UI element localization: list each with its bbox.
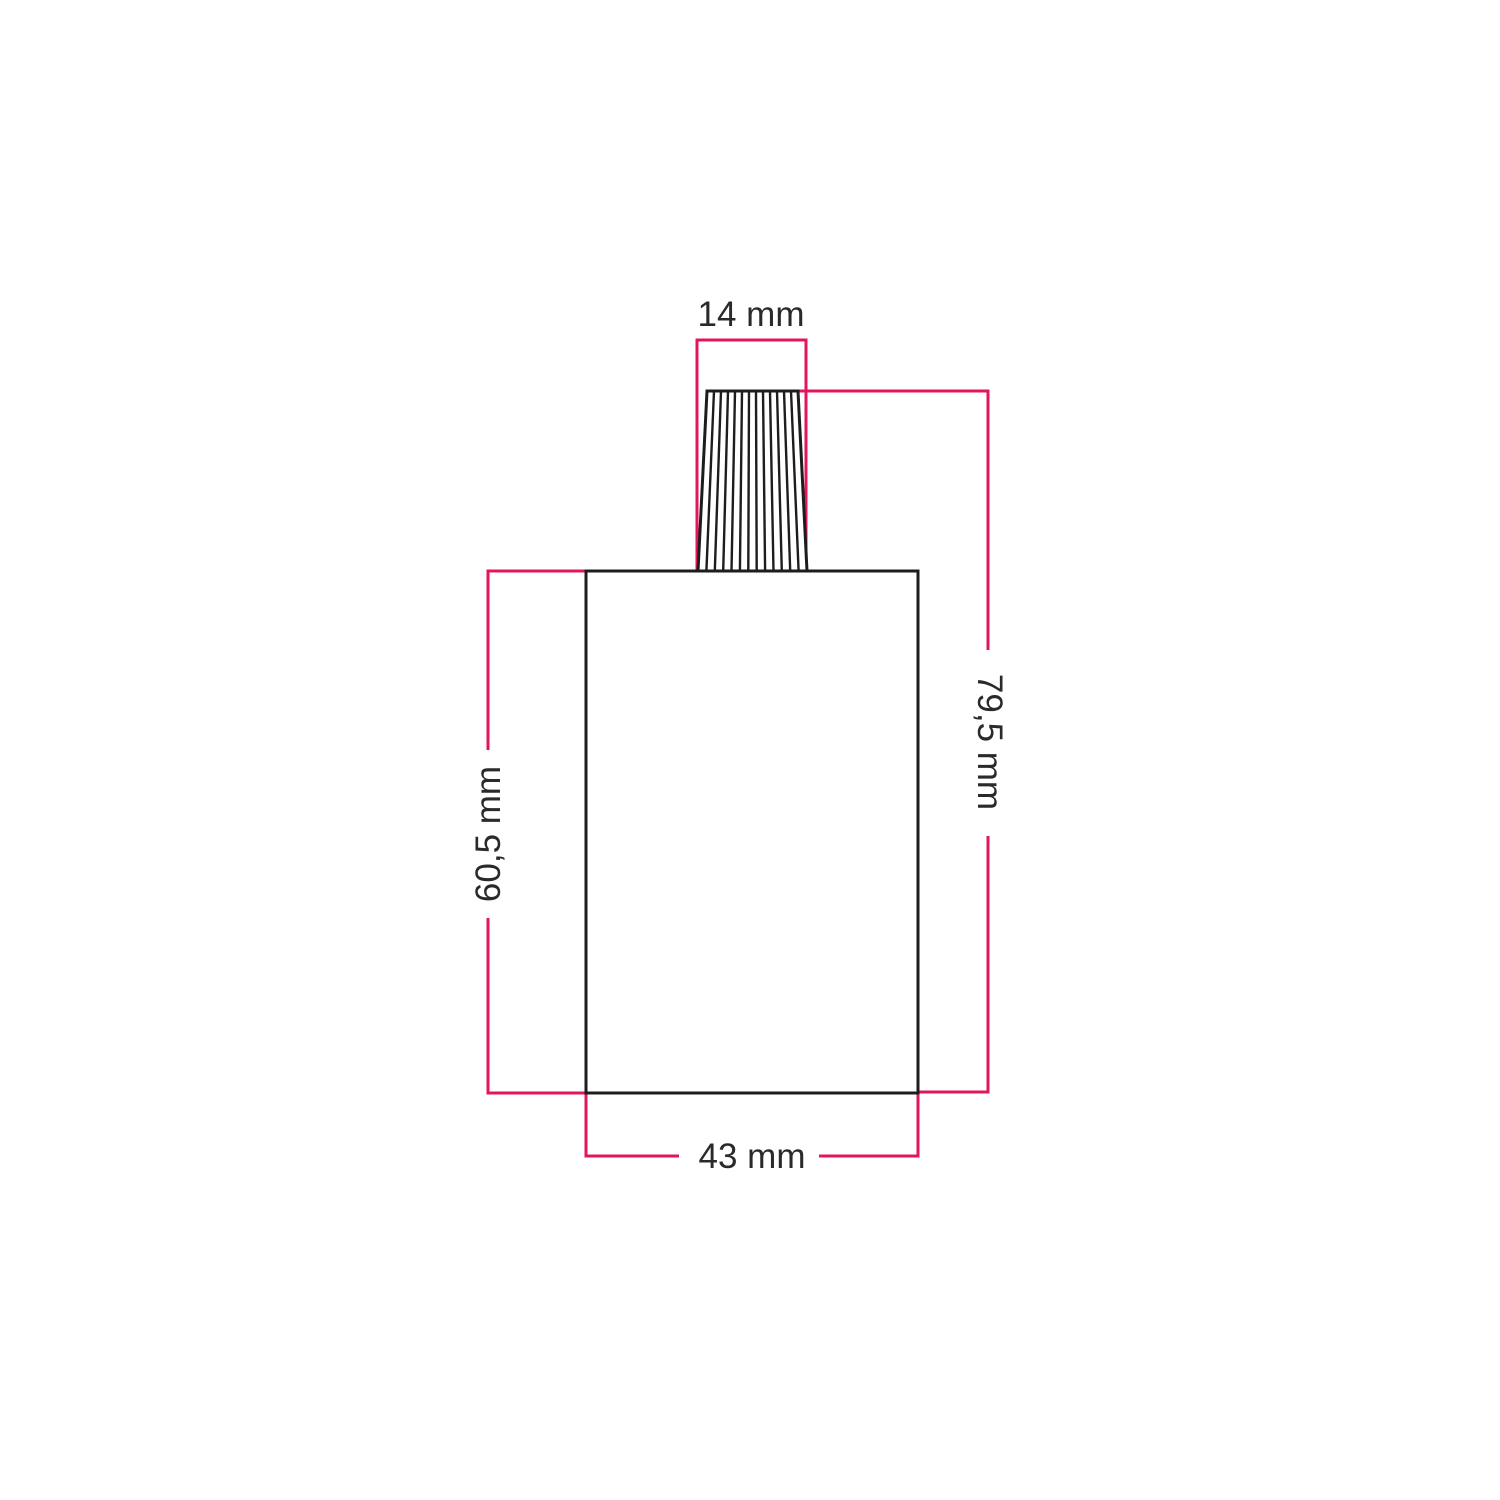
dimension-label-total-height: 79,5 mm <box>970 674 1009 810</box>
socket-body <box>586 571 918 1093</box>
dimension-label-body-width: 43 mm <box>699 1137 806 1176</box>
cable-gland <box>698 391 807 571</box>
socket-body-outline <box>586 571 918 1093</box>
technical-drawing-page: 14 mm 79,5 mm 60,5 mm 43 mm <box>0 0 1500 1500</box>
dimension-diagram: 14 mm 79,5 mm 60,5 mm 43 mm <box>0 0 1500 1500</box>
dimension-label-top-width: 14 mm <box>698 295 805 334</box>
dimension-label-body-height: 60,5 mm <box>469 766 508 902</box>
cable-gland-outline <box>698 391 807 571</box>
